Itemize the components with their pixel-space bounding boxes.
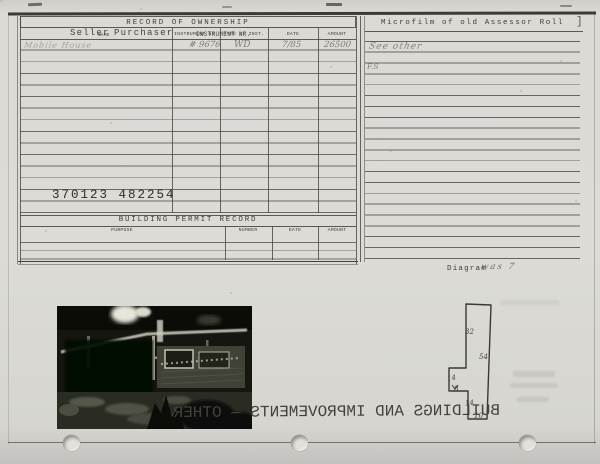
microfilm-note2-handwriting: F.S [367,62,379,71]
photo-carport-shadow [65,340,153,394]
photo-dappled-light [105,403,149,415]
dim-54: 54 [479,353,488,361]
bleed-smudge [513,371,555,377]
bleed-smudge [500,300,560,305]
photo-window [165,350,193,368]
dim-14a: 14 [446,373,456,382]
permit-title: BUILDING PERMIT RECORD [20,216,356,224]
column-divider [318,28,319,213]
ownership-title-box: RECORD OF OWNERSHIP [20,16,356,28]
microfilm-title: Microfilm of old Assessor Roll [365,19,580,27]
permit-bottom-thin-line [18,264,358,265]
photo-sunlit-trunk [157,320,163,342]
permit-column-divider [318,226,319,260]
diagram-annotation-handwriting: was 7 [480,262,517,272]
microfilm-note-handwriting: See other [368,42,423,52]
punch-hole [291,435,308,451]
dim-32: 32 [465,328,474,336]
permit-col-date: DATE [289,227,301,233]
col-header-date-label: DATE [287,31,299,37]
photo-tree-canopy [57,306,252,330]
table-left-border-outer [17,16,18,264]
punch-hole [63,435,80,451]
photo-sky-gap-small [135,307,151,317]
section-divider [360,16,361,262]
column-divider [220,28,221,213]
col-header-purchaser: Purchaser [114,28,173,38]
scan-artifact [28,3,42,6]
entry-type-handwriting: WD [234,40,250,50]
bleed-through-text: BUILDINGS AND IMPROVEMENTS — OTHER [150,402,500,422]
paper-speckles [0,0,2,2]
entry-amount-handwriting: 26500 [323,40,351,50]
photo-window [199,352,229,368]
card-left-edge [8,14,9,444]
dim-8: 8 [454,385,458,393]
col-header-instrument-label: INSTRUMENT NR. [174,31,218,37]
entry-instrument-handwriting: # 9676 [188,40,221,50]
bleed-smudge [517,397,549,402]
microfilm-bracket: ] [576,16,583,28]
column-divider [268,28,269,213]
permit-col-number: NUMBER [239,227,258,233]
permit-column-divider [272,226,273,260]
scan-artifact [560,5,572,7]
permit-col-purpose: PURPOSE [111,227,133,233]
entry-date-handwriting: 7/85 [281,40,301,50]
photo-rock [59,404,79,416]
col-header-type-label: TYPE of INST. [224,31,265,37]
bleed-smudge [510,383,558,388]
reference-numbers-handwriting: 370123 482254 [52,188,176,202]
scan-artifact [326,3,342,6]
scan-artifact [222,6,232,8]
table-left-border [20,16,21,264]
microfilm-ruled-lines [365,31,580,260]
column-divider [172,28,173,213]
permit-title-underline [20,226,356,227]
permit-ruled-rows [20,235,356,260]
table-right-border [356,16,357,264]
entry-seller-handwriting: Mobile House [23,41,93,50]
permit-bottom-heavy-line [18,261,358,263]
card-right-edge [594,14,595,444]
punch-hole [519,435,536,451]
assessor-record-card: RECORD OF OWNERSHIP Seller NAME Purchase… [0,0,600,464]
card-top-edge [8,11,596,15]
permit-column-divider [225,226,226,260]
col-header-name: NAME [98,32,110,37]
ownership-title: RECORD OF OWNERSHIP [21,17,355,27]
permit-col-amount: AMOUNT [328,227,347,233]
col-header-amount-label: AMOUNT [328,31,347,37]
photo-light-patch [197,315,221,325]
